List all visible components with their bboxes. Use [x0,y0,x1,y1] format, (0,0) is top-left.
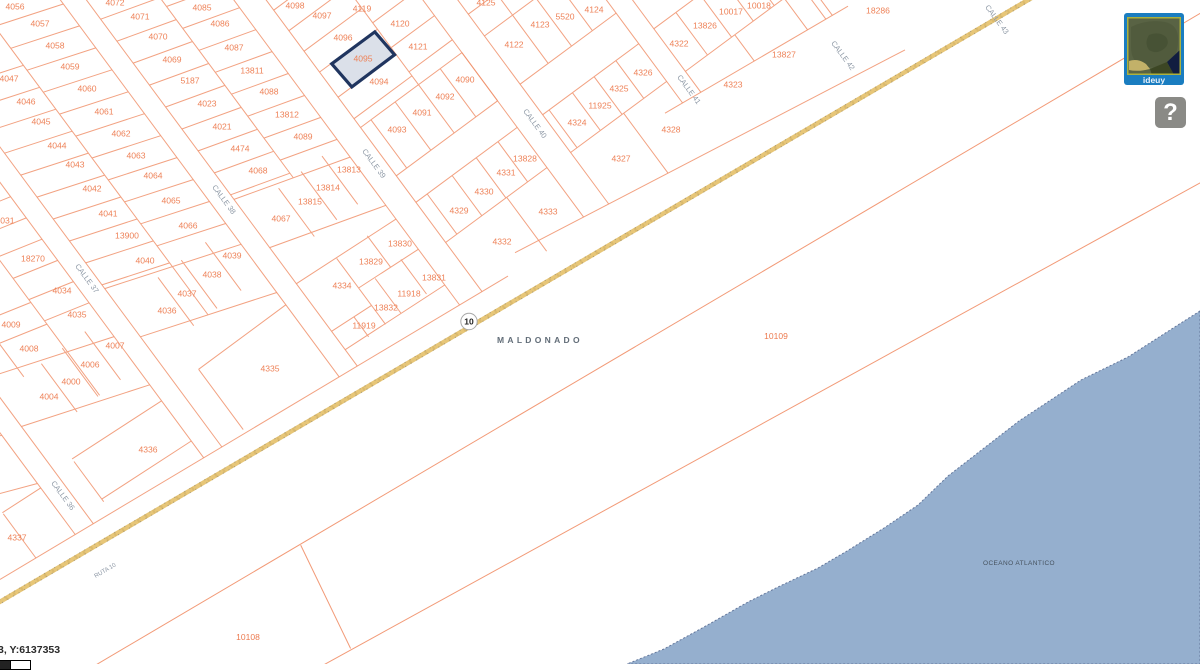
svg-text:4329: 4329 [449,206,468,216]
svg-text:4006: 4006 [80,360,99,370]
svg-text:4058: 4058 [45,41,64,51]
svg-text:4021: 4021 [212,122,231,132]
svg-text:4336: 4336 [138,445,157,455]
svg-text:4123: 4123 [530,20,549,30]
svg-text:4095: 4095 [353,54,372,64]
svg-text:4066: 4066 [178,221,197,231]
svg-text:10: 10 [464,317,474,327]
svg-text:13829: 13829 [359,257,383,267]
svg-text:4072: 4072 [105,0,124,8]
svg-text:4062: 4062 [111,129,130,139]
svg-text:4333: 4333 [538,207,557,217]
svg-text:4023: 4023 [197,99,216,109]
svg-text:4088: 4088 [259,87,278,97]
svg-text:11918: 11918 [397,289,420,299]
svg-text:5187: 5187 [180,76,199,86]
svg-text:13828: 13828 [513,154,537,164]
svg-text:4036: 4036 [157,306,176,316]
svg-text:13814: 13814 [316,183,340,193]
svg-text:13832: 13832 [374,303,398,313]
svg-text:4008: 4008 [19,344,38,354]
svg-text:13815: 13815 [298,197,322,207]
svg-text:4091: 4091 [412,108,431,118]
svg-text:4098: 4098 [285,1,304,11]
svg-text:4068: 4068 [248,166,267,176]
svg-text:4328: 4328 [661,125,680,135]
svg-text:4121: 4121 [408,42,427,52]
svg-text:4070: 4070 [148,32,167,42]
svg-text:4085: 4085 [192,3,211,13]
svg-text:18286: 18286 [866,6,890,16]
svg-text:4125: 4125 [476,0,495,8]
svg-text:4038: 4038 [202,270,221,280]
svg-text:4097: 4097 [312,11,331,21]
svg-text:4040: 4040 [135,256,154,266]
svg-text:4093: 4093 [387,125,406,135]
svg-text:4007: 4007 [105,341,124,351]
svg-text:4009: 4009 [1,320,20,330]
svg-text:4039: 4039 [222,251,241,261]
svg-text:4046: 4046 [16,97,35,107]
svg-text:4043: 4043 [65,160,84,170]
svg-text:4474: 4474 [230,144,249,154]
svg-text:4061: 4061 [94,107,113,117]
svg-text:4000: 4000 [61,377,80,387]
svg-text:RUTA 10: RUTA 10 [94,562,118,580]
svg-text:4086: 4086 [210,19,229,29]
svg-text:4325: 4325 [609,84,628,94]
svg-text:4087: 4087 [224,43,243,53]
svg-text:13900: 13900 [115,231,139,241]
svg-text:4031: 4031 [0,216,15,226]
svg-text:4067: 4067 [271,214,290,224]
svg-text:10108: 10108 [236,632,260,642]
svg-text:4057: 4057 [30,19,49,29]
svg-text:13831: 13831 [422,273,446,283]
svg-text:4327: 4327 [611,154,630,164]
svg-text:4069: 4069 [162,55,181,65]
svg-text:4063: 4063 [126,151,145,161]
svg-text:4071: 4071 [130,12,149,22]
svg-text:4120: 4120 [390,19,409,29]
svg-text:13812: 13812 [275,110,299,120]
svg-text:4034: 4034 [52,286,71,296]
svg-text:4323: 4323 [723,80,742,90]
svg-text:4330: 4330 [474,187,493,197]
svg-text:4089: 4089 [293,132,312,142]
svg-text:4122: 4122 [504,40,523,50]
svg-text:4334: 4334 [332,281,351,291]
svg-text:4045: 4045 [31,117,50,127]
svg-text:11925: 11925 [588,101,611,111]
svg-text:10017: 10017 [719,7,743,17]
svg-text:4004: 4004 [39,392,58,402]
svg-text:4035: 4035 [67,310,86,320]
svg-text:4060: 4060 [77,84,96,94]
svg-text:4119: 4119 [353,4,372,14]
svg-text:4056: 4056 [5,2,24,12]
svg-text:10109: 10109 [764,331,788,341]
svg-text:CALLE 40: CALLE 40 [521,107,549,140]
svg-text:4332: 4332 [492,237,511,247]
svg-text:4324: 4324 [567,118,586,128]
svg-text:CALLE 43: CALLE 43 [983,3,1011,36]
svg-text:CALLE 39: CALLE 39 [360,147,388,180]
svg-text:4326: 4326 [633,68,652,78]
svg-text:4124: 4124 [584,5,603,15]
svg-text:4096: 4096 [333,33,352,43]
svg-text:13811: 13811 [240,66,263,76]
svg-text:4059: 4059 [60,62,79,72]
svg-text:13826: 13826 [693,21,717,31]
svg-text:4065: 4065 [161,196,180,206]
svg-text:13830: 13830 [388,239,412,249]
svg-text:4042: 4042 [82,184,101,194]
svg-text:4044: 4044 [47,141,66,151]
svg-text:11919: 11919 [352,321,375,331]
svg-text:18270: 18270 [21,254,45,264]
svg-text:4064: 4064 [143,171,162,181]
svg-text:4092: 4092 [435,92,454,102]
svg-text:4337: 4337 [7,533,26,543]
svg-text:4037: 4037 [177,289,196,299]
svg-text:CALLE 42: CALLE 42 [829,39,857,72]
svg-text:4041: 4041 [98,209,117,219]
svg-text:13813: 13813 [337,165,361,175]
svg-text:4094: 4094 [369,77,388,87]
svg-text:4322: 4322 [669,39,688,49]
svg-text:4047: 4047 [0,74,19,84]
svg-text:5520: 5520 [555,12,574,22]
svg-text:13827: 13827 [772,50,796,60]
svg-text:OCEANO ATLANTICO: OCEANO ATLANTICO [983,560,1055,567]
svg-text:MALDONADO: MALDONADO [497,335,583,345]
svg-text:4331: 4331 [496,168,515,178]
svg-text:4335: 4335 [260,364,279,374]
svg-text:4090: 4090 [455,75,474,85]
svg-text:10018: 10018 [747,1,771,11]
